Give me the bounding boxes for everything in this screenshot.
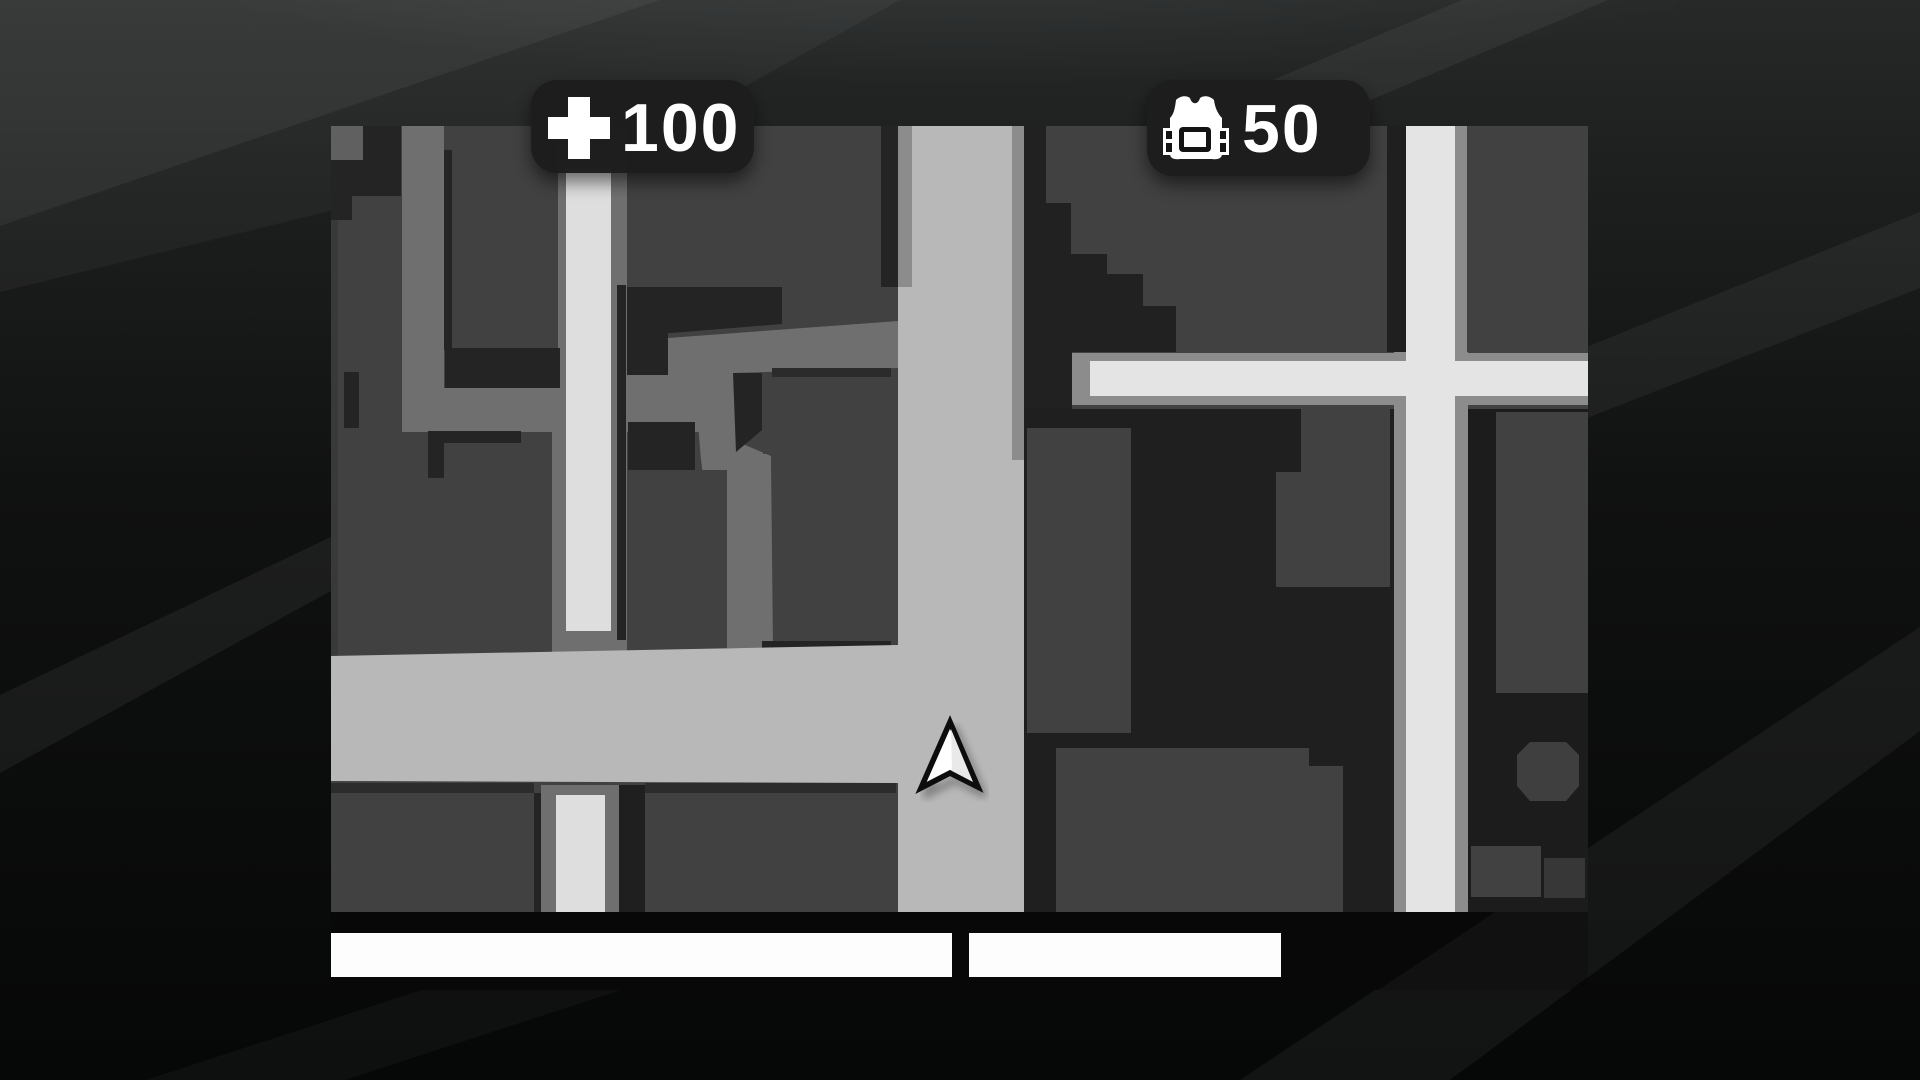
svg-text:100: 100: [621, 90, 740, 166]
svg-text:50: 50: [1242, 91, 1322, 167]
